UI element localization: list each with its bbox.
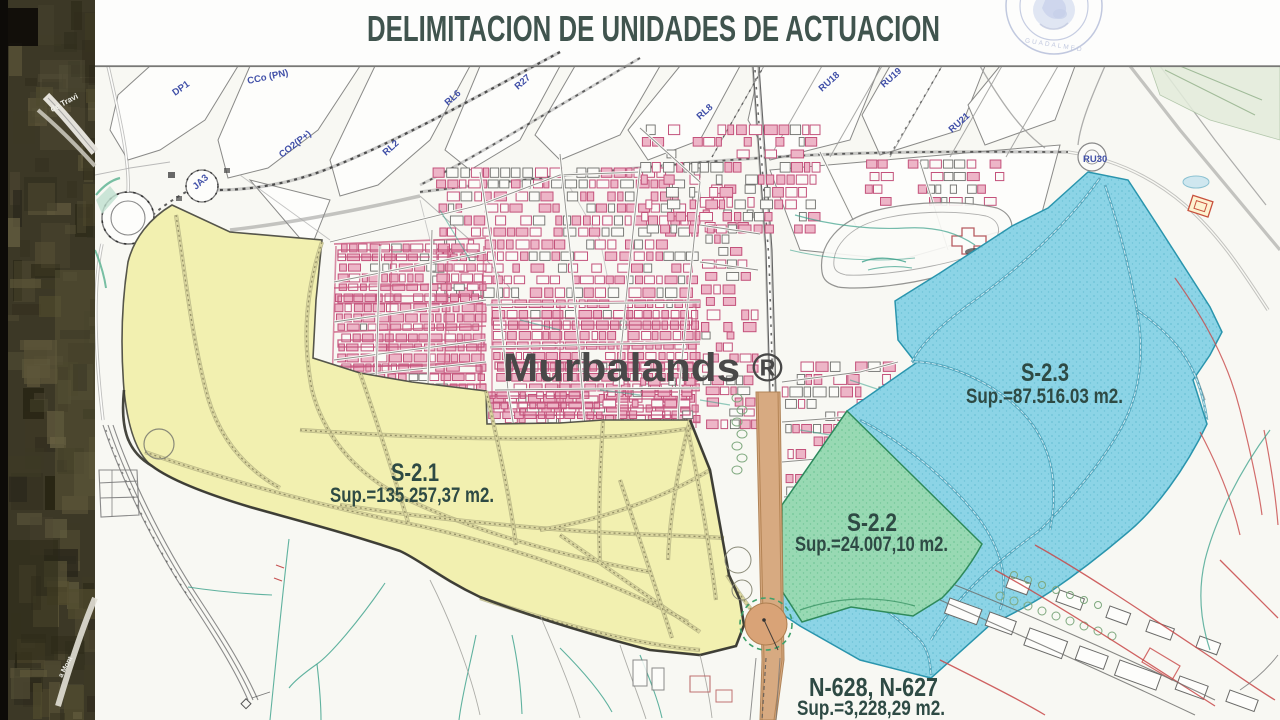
svg-text:Sup.=24.007,10 m2.: Sup.=24.007,10 m2.	[795, 533, 948, 556]
svg-text:Murbalands ®: Murbalands ®	[503, 346, 783, 390]
svg-text:Sup.=3,228,29 m2.: Sup.=3,228,29 m2.	[797, 697, 945, 720]
svg-text:RU30: RU30	[1083, 154, 1107, 165]
svg-text:Sup.=87.516.03 m2.: Sup.=87.516.03 m2.	[966, 385, 1123, 408]
svg-text:S-2.3: S-2.3	[1021, 359, 1069, 387]
svg-text:Sup.=135.257,37 m2.: Sup.=135.257,37 m2.	[330, 484, 494, 507]
svg-text:S-2.1: S-2.1	[391, 459, 439, 487]
svg-text:DELIMITACION DE UNIDADES DE AC: DELIMITACION DE UNIDADES DE ACTUACION	[367, 8, 940, 49]
